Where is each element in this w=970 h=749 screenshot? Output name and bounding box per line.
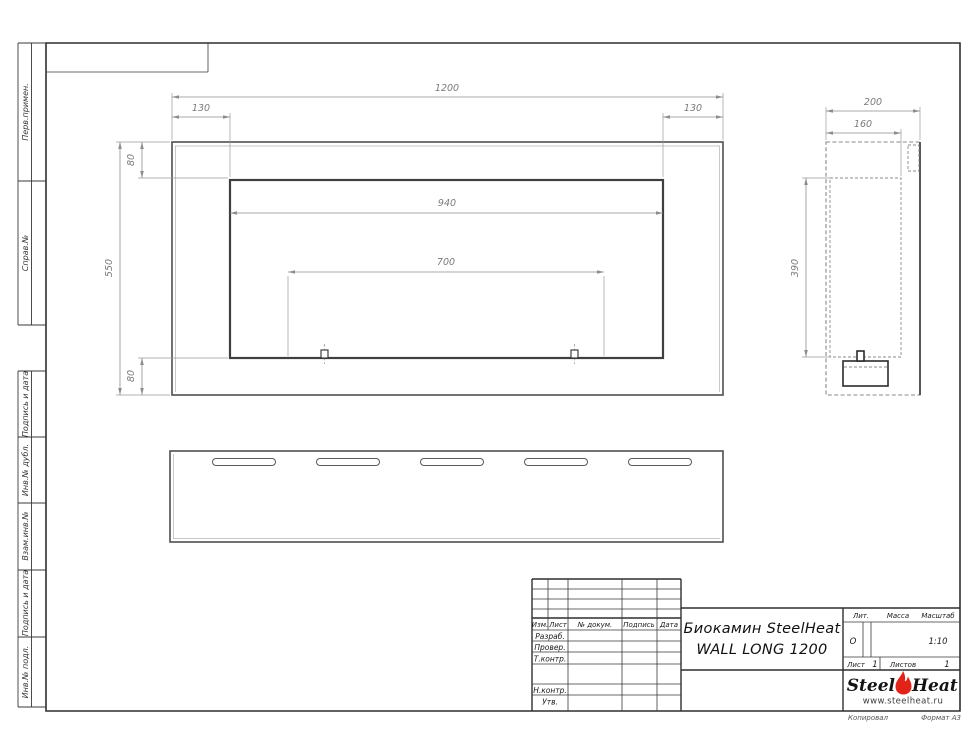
- dimension: 130: [663, 103, 723, 119]
- tb-scale-label: Масштаб: [921, 612, 955, 620]
- dimension: 130: [172, 103, 230, 119]
- logo-steel: Steel: [847, 676, 896, 696]
- margin-label: Перв.примен.: [21, 83, 30, 141]
- tb-lit-value: О: [850, 637, 857, 647]
- dimension-value: 700: [437, 257, 455, 268]
- tb-sheet-number: 1: [872, 660, 877, 670]
- dimension-value: 80: [126, 154, 137, 166]
- dimension: 390: [790, 178, 808, 357]
- tb-sheets-label: Листов: [889, 661, 916, 669]
- tb-row-prover: Провер.: [534, 643, 565, 652]
- steelheat-logo: Steel Heat www.steelheat.ru: [847, 671, 958, 707]
- dimension: 160: [826, 119, 901, 135]
- vent-slot: [421, 459, 484, 466]
- margin-label: Подпись и дата: [21, 570, 30, 636]
- tb-row-tkontr: Т.контр.: [534, 655, 567, 664]
- vent-slot: [317, 459, 380, 466]
- tb-col-data: Дата: [659, 621, 678, 629]
- dimension-value: 160: [854, 119, 872, 130]
- dimension: 1200: [172, 83, 723, 99]
- mount-clip: [571, 350, 578, 358]
- dimension: 550: [104, 142, 122, 395]
- margin-label: Взам.инв.№: [21, 511, 30, 560]
- product-title-line2: WALL LONG 1200: [696, 642, 827, 658]
- tb-col-podpis: Подпись: [623, 621, 655, 629]
- dimension-value: 550: [104, 259, 115, 277]
- designation-repeat-box: [46, 43, 208, 72]
- drawing-canvas: Перв.примен. Справ.№ Подпись и дата Инв.…: [0, 0, 970, 749]
- dimension-value: 130: [684, 103, 702, 114]
- vent-slot: [213, 459, 276, 466]
- margin-label: Подпись и дата: [21, 371, 30, 437]
- tb-col-izm: Изм.: [532, 621, 548, 629]
- dimension-value: 940: [438, 198, 456, 209]
- burner-notch: [857, 351, 864, 361]
- tb-lit-label: Лит.: [852, 612, 869, 620]
- tb-row-razrab: Разраб.: [535, 632, 564, 641]
- dimension-value: 80: [126, 370, 137, 382]
- front-view: [172, 142, 723, 395]
- drawing-sheet: Перв.примен. Справ.№ Подпись и дата Инв.…: [0, 0, 970, 749]
- dimension: 200: [826, 97, 920, 113]
- logo-heat: Heat: [911, 676, 958, 696]
- footer-copied-by: Копировал: [848, 714, 889, 722]
- tb-sheet-label: Лист: [846, 661, 866, 669]
- dimension-value: 1200: [435, 83, 459, 94]
- mount-clip: [321, 350, 328, 358]
- tb-row-nkontr: Н.контр.: [533, 686, 567, 695]
- dimension-value: 130: [192, 103, 210, 114]
- dimension: 80: [126, 358, 144, 395]
- margin-label-boxes: Перв.примен. Справ.№ Подпись и дата Инв.…: [18, 43, 46, 707]
- top-view: [170, 451, 723, 542]
- tb-mass-label: Масса: [887, 612, 909, 620]
- bracket-hidden: [908, 145, 919, 171]
- dimension-value: 390: [790, 259, 801, 277]
- tb-scale-value: 1:10: [928, 637, 947, 647]
- margin-label: Инв.№ дубл.: [21, 444, 30, 496]
- margin-label: Справ.№: [21, 235, 30, 271]
- product-title-line1: Биокамин SteelHeat: [684, 621, 842, 637]
- logo-website: www.steelheat.ru: [863, 697, 944, 707]
- dimension: 80: [126, 142, 144, 178]
- tb-col-list: Лист: [548, 621, 568, 629]
- vent-slot: [629, 459, 692, 466]
- vent-slot: [525, 459, 588, 466]
- tb-row-utv: Утв.: [542, 698, 558, 707]
- tb-col-docnum: № докум.: [577, 621, 613, 629]
- tb-sheets-total: 1: [944, 660, 949, 670]
- footer-format: Формат А3: [921, 714, 961, 722]
- title-block: Изм. Лист № докум. Подпись Дата Разраб. …: [532, 579, 960, 711]
- dimension-value: 200: [864, 97, 882, 108]
- margin-label: Инв.№ подл.: [21, 646, 30, 699]
- burner-box: [843, 361, 888, 386]
- side-view: [826, 142, 920, 395]
- flame-icon: [896, 671, 912, 695]
